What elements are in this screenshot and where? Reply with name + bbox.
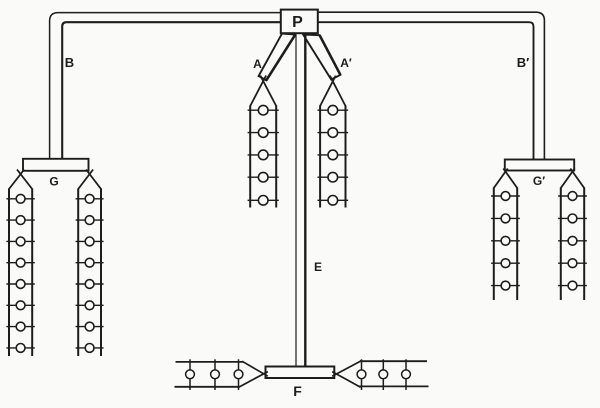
- svg-text:G′: G′: [533, 174, 545, 188]
- svg-text:F: F: [293, 383, 302, 399]
- svg-text:B′: B′: [517, 55, 530, 70]
- svg-text:E: E: [314, 260, 322, 274]
- svg-text:A′: A′: [340, 56, 352, 70]
- svg-text:A: A: [253, 57, 262, 71]
- svg-text:G: G: [49, 175, 58, 189]
- svg-text:P: P: [292, 14, 303, 31]
- svg-text:B: B: [65, 55, 74, 70]
